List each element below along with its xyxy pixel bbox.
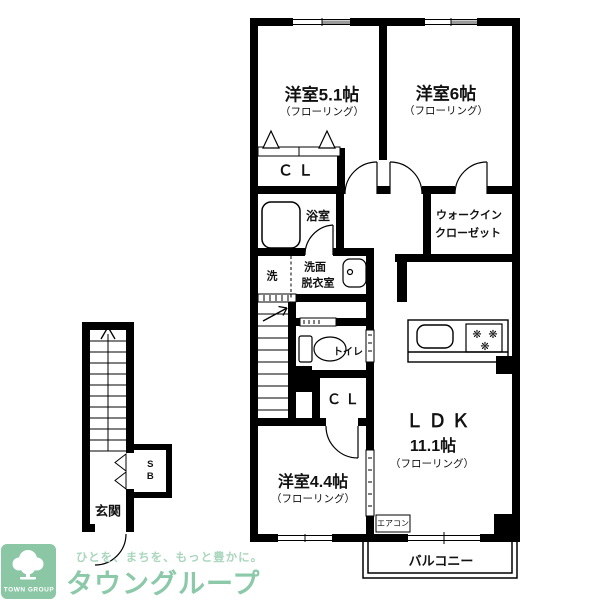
label-toilet: トイレ [333, 348, 363, 358]
label-washer: 洗 [267, 272, 278, 283]
label-room51-floor: （フローリング） [280, 107, 364, 118]
label-balcony: バルコニー [409, 555, 474, 568]
door-room51 [345, 162, 377, 194]
entrance-block [82, 322, 172, 532]
room44-sliding-door [366, 450, 374, 516]
door-wic [455, 162, 487, 194]
stove-burner-icons: ❋ ❋ ❋ [472, 328, 497, 353]
label-shoebox: SB [145, 459, 155, 483]
entrance-walls [82, 322, 172, 532]
ldk-sliding-door [366, 330, 374, 362]
label-entrance: 玄関 [95, 505, 121, 518]
door-room44 [326, 426, 358, 458]
label-ldk-floor: （フローリング） [390, 459, 474, 470]
window-top-right [425, 18, 477, 26]
label-closet1: ＣＬ [278, 164, 318, 179]
window-bottom-ldk [408, 532, 480, 544]
burner-icon: ❋ [480, 340, 489, 353]
washroom-sink [343, 259, 366, 287]
label-wic-1: ウォークイン [436, 211, 502, 222]
window-bottom-left [278, 534, 332, 542]
label-room6-floor: （フローリング） [404, 106, 488, 117]
window-top-left [293, 18, 350, 26]
kitchen-sink [417, 325, 453, 348]
label-ldk-size: 11.1帖 [410, 439, 456, 455]
label-room6: 洋室6帖 [416, 86, 476, 103]
fixtures [262, 202, 508, 362]
door-room6 [390, 162, 422, 194]
label-aircon: エアコン [377, 520, 409, 528]
logo-brand: タウングループ [66, 562, 260, 600]
label-ldk: ＬＤＫ [406, 412, 475, 430]
closet1-folding-door [258, 131, 340, 156]
toilet-accordion-door [300, 318, 336, 326]
label-washroom-1: 洗面 [304, 263, 326, 274]
stairs-outside [90, 327, 126, 451]
logo-brand-en: TOWN GROUP [4, 587, 54, 594]
label-wic-2: クローゼット [435, 229, 501, 240]
label-washroom-2: 脱衣室 [302, 279, 335, 290]
burner-icon: ❋ [488, 328, 497, 341]
label-bathroom: 浴室 [306, 210, 330, 222]
door-bathroom [305, 225, 333, 255]
kitchen-counter [408, 320, 508, 362]
label-room44: 洋室4.4帖 [278, 475, 348, 491]
label-room51: 洋室5.1帖 [285, 87, 360, 104]
entrance-door-opening [95, 524, 126, 532]
bathtub [262, 202, 300, 248]
floorplan-page: ❋ ❋ ❋ 洋室5.1帖 （フローリング） 洋室6帖 （フローリング） ＣＬ 浴… [0, 0, 600, 600]
label-closet2: ＣＬ [327, 392, 363, 406]
label-room44-floor: （フローリング） [271, 494, 355, 505]
